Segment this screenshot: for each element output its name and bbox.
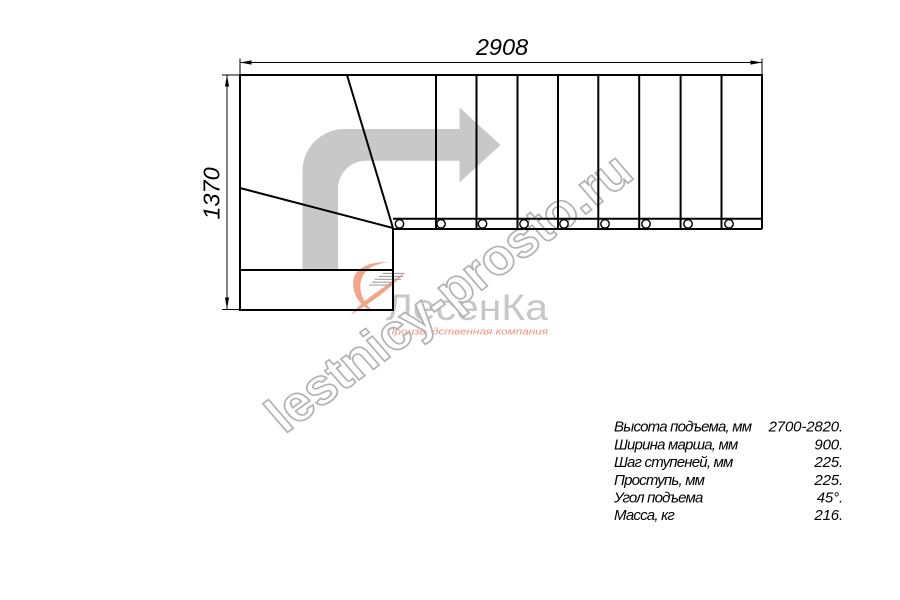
svg-text:Шаг ступеней, мм: Шаг ступеней, мм [614, 454, 733, 471]
svg-text:1370: 1370 [199, 167, 225, 219]
svg-text:2908: 2908 [475, 34, 528, 60]
svg-text:Угол подъема: Угол подъема [613, 490, 703, 507]
svg-text:225.: 225. [813, 472, 843, 489]
svg-text:Проступь, мм: Проступь, мм [614, 472, 705, 489]
svg-text:216.: 216. [813, 507, 843, 524]
svg-text:45°.: 45°. [817, 490, 843, 507]
svg-text:900.: 900. [814, 436, 843, 453]
svg-text:Масса, кг: Масса, кг [614, 507, 675, 524]
svg-text:Ширина марша, мм: Ширина марша, мм [614, 436, 738, 453]
svg-text:2700-2820.: 2700-2820. [768, 419, 843, 436]
svg-text:Высота подъема, мм: Высота подъема, мм [614, 419, 752, 436]
svg-text:225.: 225. [813, 454, 843, 471]
